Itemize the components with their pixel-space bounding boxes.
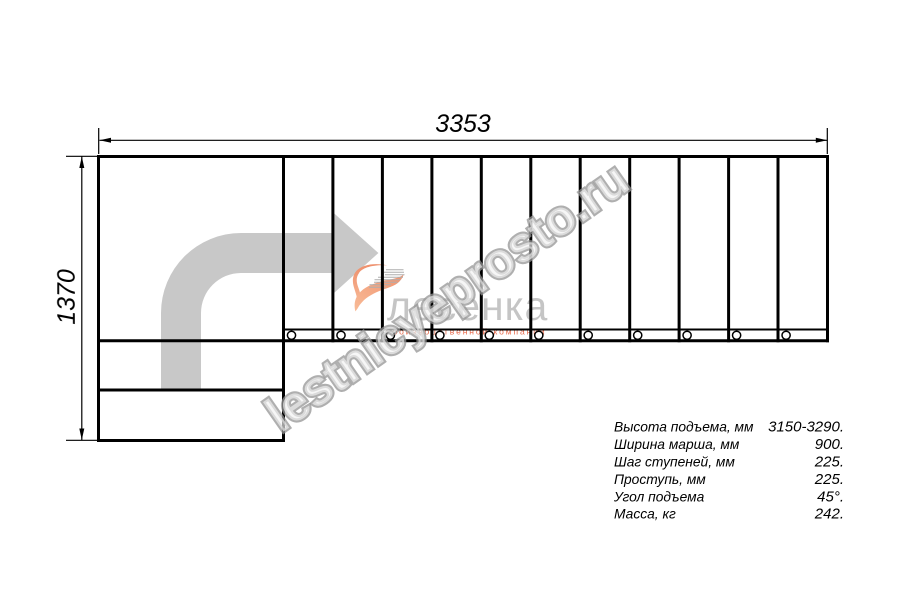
svg-text:Масса, кг: Масса, кг (614, 507, 676, 522)
svg-text:225.: 225. (814, 454, 844, 471)
svg-text:1370: 1370 (53, 269, 81, 325)
svg-text:Шаг ступеней, мм: Шаг ступеней, мм (614, 455, 735, 470)
svg-text:900.: 900. (815, 436, 844, 453)
svg-text:225.: 225. (814, 471, 844, 488)
svg-text:Ширина марша, мм: Ширина марша, мм (614, 437, 740, 452)
svg-text:45°.: 45°. (817, 488, 844, 505)
svg-text:Высота подъема, мм: Высота подъема, мм (614, 420, 754, 435)
svg-text:Проступь, мм: Проступь, мм (614, 472, 706, 487)
svg-text:Угол подъема: Угол подъема (613, 489, 705, 504)
svg-text:242.: 242. (814, 506, 844, 523)
svg-text:3353: 3353 (435, 110, 491, 138)
svg-text:3150-3290.: 3150-3290. (768, 419, 844, 436)
